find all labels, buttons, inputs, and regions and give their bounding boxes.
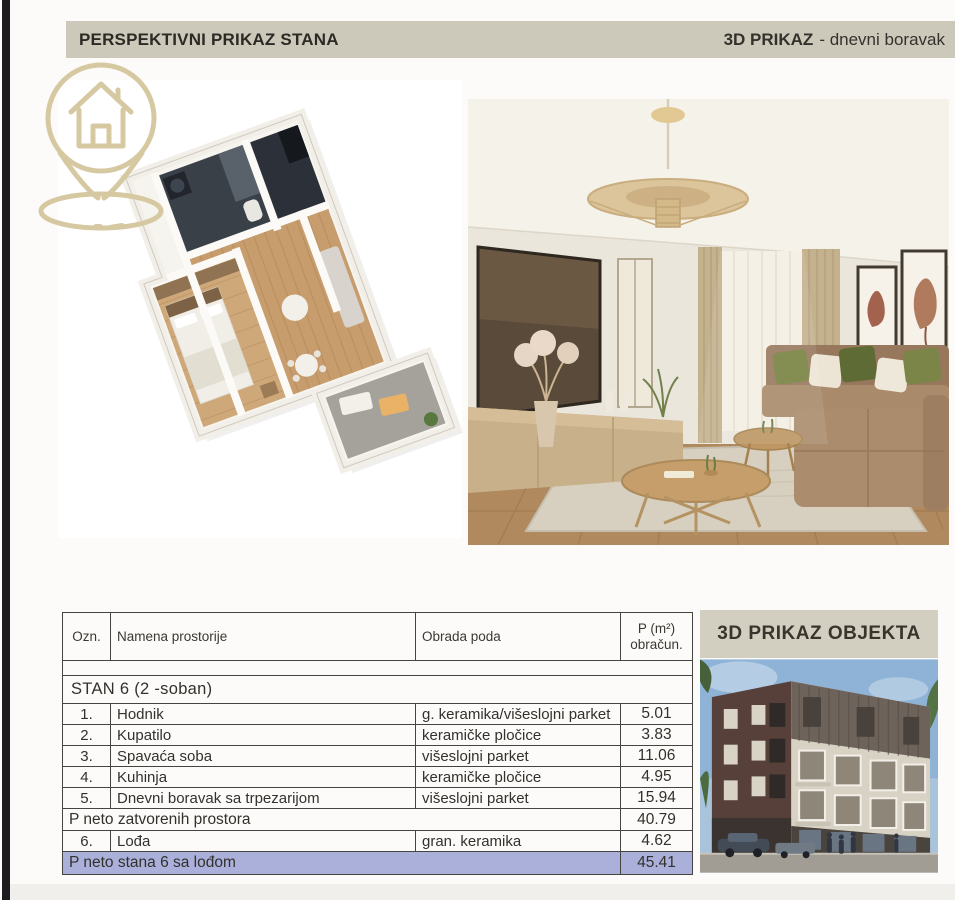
table-row: 4. Kuhinja keramičke pločice 4.95	[63, 767, 693, 788]
objekta-panel: 3D PRIKAZ OBJEKTA	[700, 610, 938, 874]
cell-name: Kuhinja	[111, 767, 416, 788]
page-left-edge	[2, 0, 10, 900]
cell-name: Lođa	[111, 831, 416, 852]
areas-table: Ozn. Namena prostorije Obrada poda P (m²…	[62, 612, 693, 875]
cell-area: 4.95	[621, 767, 693, 788]
section-row: STAN 6 (2 -soban)	[63, 676, 693, 704]
cell-area: 3.83	[621, 725, 693, 746]
cell-ozn: 5.	[63, 788, 111, 809]
total-row: P neto stana 6 sa lođom 45.41	[63, 852, 693, 875]
cell-name: Spavaća soba	[111, 746, 416, 767]
col-area: P (m²) obračun.	[621, 613, 693, 661]
table-row: 6. Lođa gran. keramika 4.62	[63, 831, 693, 852]
cell-ozn: 3.	[63, 746, 111, 767]
subtotal-row: P neto zatvorenih prostora 40.79	[63, 809, 693, 831]
render-caption: 3D PRIKAZ- dnevni boravak	[724, 30, 945, 50]
cell-floor: gran. keramika	[416, 831, 621, 852]
col-name: Namena prostorije	[111, 613, 416, 661]
objekta-title: 3D PRIKAZ OBJEKTA	[700, 610, 938, 658]
brochure-page: PERSPEKTIVNI PRIKAZ STANA 3D PRIKAZ- dne…	[0, 0, 955, 900]
cell-name: Dnevni boravak sa trpezarijom	[111, 788, 416, 809]
subtotal-area: 40.79	[621, 809, 693, 831]
cell-area: 5.01	[621, 704, 693, 725]
total-label: P neto stana 6 sa lođom	[63, 852, 621, 875]
render-caption-bold: 3D PRIKAZ	[724, 30, 814, 49]
total-area: 45.41	[621, 852, 693, 875]
table-row: 5. Dnevni boravak sa trpezarijom višeslo…	[63, 788, 693, 809]
subtotal-label: P neto zatvorenih prostora	[63, 809, 621, 831]
cell-floor: višeslojni parket	[416, 788, 621, 809]
title-bar: PERSPEKTIVNI PRIKAZ STANA 3D PRIKAZ- dne…	[66, 21, 955, 58]
cell-floor: g. keramika/višeslojni parket	[416, 704, 621, 725]
cell-area: 4.62	[621, 831, 693, 852]
living-room-render-image	[468, 99, 949, 545]
render-caption-rest: - dnevni boravak	[819, 30, 945, 49]
cell-floor: keramičke pločice	[416, 767, 621, 788]
page-bottom-band	[10, 884, 955, 900]
cell-name: Kupatilo	[111, 725, 416, 746]
col-ozn: Ozn.	[63, 613, 111, 661]
location-pin-house-icon	[26, 46, 176, 244]
cell-ozn: 4.	[63, 767, 111, 788]
cell-ozn: 1.	[63, 704, 111, 725]
table-row: 3. Spavaća soba višeslojni parket 11.06	[63, 746, 693, 767]
areas-table-section: Ozn. Namena prostorije Obrada poda P (m²…	[62, 612, 692, 875]
cell-area: 15.94	[621, 788, 693, 809]
cell-floor: višeslojni parket	[416, 746, 621, 767]
col-area-line2: obračun.	[627, 637, 686, 653]
cell-area: 11.06	[621, 746, 693, 767]
section-title: STAN 6 (2 -soban)	[63, 676, 693, 704]
table-header-row: Ozn. Namena prostorije Obrada poda P (m²…	[63, 613, 693, 661]
cell-floor: keramičke pločice	[416, 725, 621, 746]
col-area-line1: P (m²)	[627, 621, 686, 637]
building-render-image	[700, 658, 938, 874]
spacer-row	[63, 661, 693, 676]
cell-name: Hodnik	[111, 704, 416, 725]
cell-ozn: 6.	[63, 831, 111, 852]
table-row: 1. Hodnik g. keramika/višeslojni parket …	[63, 704, 693, 725]
cell-ozn: 2.	[63, 725, 111, 746]
col-floor: Obrada poda	[416, 613, 621, 661]
table-row: 2. Kupatilo keramičke pločice 3.83	[63, 725, 693, 746]
